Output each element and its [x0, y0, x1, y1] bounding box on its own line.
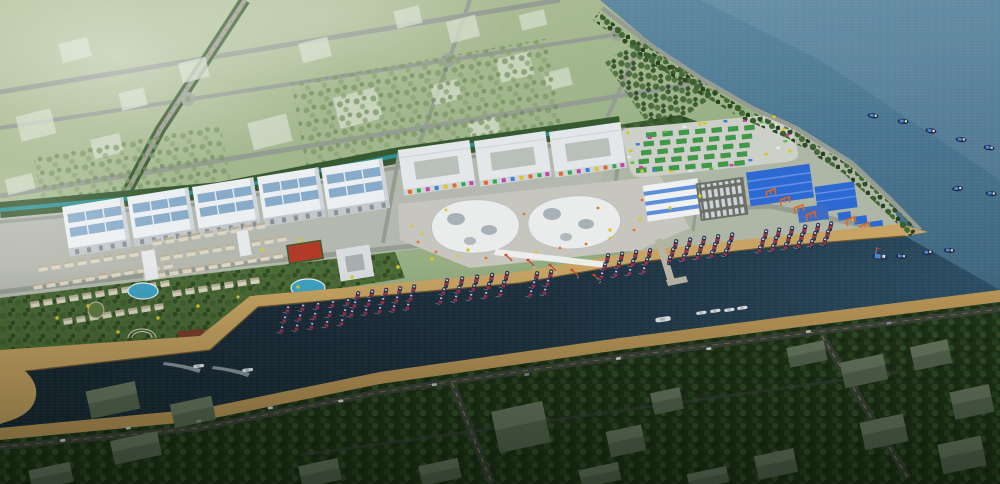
vignette: [0, 0, 1000, 484]
masterplan-rendering: [0, 0, 1000, 484]
aerial-rendering-canvas: [0, 0, 1000, 484]
